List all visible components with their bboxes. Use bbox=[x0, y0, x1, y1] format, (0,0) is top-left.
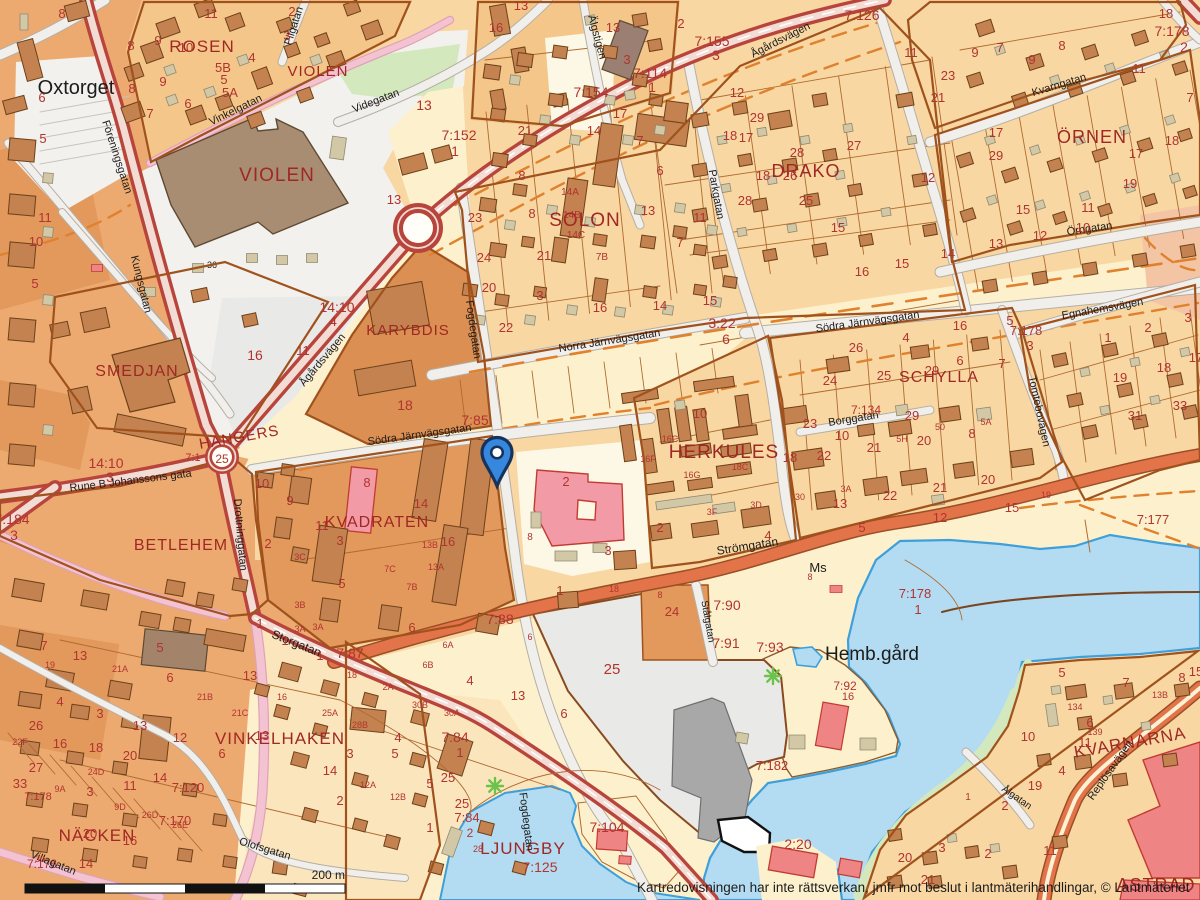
svg-text:9: 9 bbox=[154, 33, 161, 48]
svg-text:9: 9 bbox=[1028, 52, 1035, 67]
svg-text:6: 6 bbox=[166, 670, 173, 685]
svg-text:7: 7 bbox=[40, 638, 47, 653]
svg-text:SOLON: SOLON bbox=[549, 210, 621, 231]
svg-text:26: 26 bbox=[29, 718, 43, 733]
svg-text:25: 25 bbox=[215, 452, 229, 466]
svg-text:10: 10 bbox=[835, 428, 849, 443]
svg-text:2: 2 bbox=[1001, 798, 1008, 813]
svg-text:134: 134 bbox=[1067, 702, 1082, 712]
svg-text:2: 2 bbox=[1180, 39, 1188, 55]
svg-text:7B: 7B bbox=[596, 252, 609, 263]
svg-text:2: 2 bbox=[264, 536, 271, 551]
svg-text:3:22: 3:22 bbox=[708, 315, 735, 331]
svg-text:26: 26 bbox=[783, 168, 797, 183]
svg-text:15: 15 bbox=[831, 220, 845, 235]
svg-text:11: 11 bbox=[296, 343, 310, 358]
svg-text:17: 17 bbox=[613, 106, 627, 121]
svg-text:24D: 24D bbox=[88, 767, 105, 777]
svg-text:13: 13 bbox=[606, 20, 620, 35]
svg-text:1: 1 bbox=[914, 602, 921, 617]
svg-text:18C: 18C bbox=[732, 462, 749, 472]
svg-text:7:154: 7:154 bbox=[573, 84, 608, 100]
svg-text:30: 30 bbox=[795, 492, 805, 502]
svg-text:23: 23 bbox=[803, 416, 817, 431]
svg-text:4: 4 bbox=[329, 313, 337, 329]
svg-text:1: 1 bbox=[316, 648, 323, 663]
svg-text:BETLEHEM: BETLEHEM bbox=[134, 537, 228, 554]
svg-text:4: 4 bbox=[248, 50, 255, 65]
svg-text:12: 12 bbox=[1033, 228, 1047, 243]
svg-text:7:177: 7:177 bbox=[1137, 512, 1170, 527]
svg-text:5A: 5A bbox=[980, 417, 991, 427]
svg-text:5: 5 bbox=[391, 746, 398, 761]
svg-text:15: 15 bbox=[1189, 664, 1200, 679]
svg-text:24: 24 bbox=[665, 604, 679, 619]
svg-text:12: 12 bbox=[933, 510, 947, 525]
svg-text:18: 18 bbox=[89, 740, 103, 755]
svg-text:3D: 3D bbox=[750, 500, 762, 510]
svg-text:33: 33 bbox=[13, 776, 27, 791]
svg-text:6: 6 bbox=[184, 96, 191, 111]
svg-text:7: 7 bbox=[1122, 675, 1129, 690]
svg-text:8: 8 bbox=[807, 572, 812, 582]
svg-text:7:120: 7:120 bbox=[172, 780, 205, 795]
svg-text:27: 27 bbox=[29, 760, 43, 775]
svg-text:5H: 5H bbox=[896, 434, 908, 444]
svg-text:11: 11 bbox=[315, 518, 329, 533]
svg-text:21: 21 bbox=[931, 90, 945, 105]
svg-text:12: 12 bbox=[921, 170, 935, 185]
svg-text:3: 3 bbox=[10, 527, 18, 543]
svg-text:27: 27 bbox=[847, 138, 861, 153]
svg-text:18: 18 bbox=[1157, 360, 1171, 375]
svg-text:6: 6 bbox=[722, 331, 730, 347]
svg-text:24: 24 bbox=[477, 250, 491, 265]
svg-text:14: 14 bbox=[653, 298, 667, 313]
svg-text:6A: 6A bbox=[442, 640, 453, 650]
svg-text:18: 18 bbox=[397, 397, 413, 413]
svg-text:4: 4 bbox=[466, 673, 473, 688]
svg-text:9A: 9A bbox=[54, 784, 65, 794]
svg-text:17: 17 bbox=[989, 125, 1003, 140]
svg-text:11: 11 bbox=[1043, 843, 1057, 858]
svg-text:19: 19 bbox=[1123, 176, 1137, 191]
svg-text:13: 13 bbox=[255, 728, 269, 743]
svg-text:3A: 3A bbox=[294, 624, 305, 634]
svg-text:5: 5 bbox=[1006, 313, 1013, 328]
svg-text:7:178: 7:178 bbox=[1010, 323, 1043, 338]
svg-text:4: 4 bbox=[1058, 763, 1065, 778]
svg-text:11: 11 bbox=[123, 778, 137, 793]
svg-text:2: 2 bbox=[336, 793, 343, 808]
svg-text:13: 13 bbox=[989, 236, 1003, 251]
svg-text:11: 11 bbox=[38, 210, 52, 225]
svg-text:14B: 14B bbox=[563, 210, 581, 221]
svg-text:3: 3 bbox=[96, 706, 103, 721]
svg-text:6: 6 bbox=[527, 632, 532, 642]
svg-text:17: 17 bbox=[739, 130, 753, 145]
svg-text:2: 2 bbox=[562, 474, 569, 489]
svg-text:15: 15 bbox=[1016, 202, 1030, 217]
svg-text:28: 28 bbox=[790, 145, 804, 160]
svg-text:17: 17 bbox=[1129, 146, 1143, 161]
svg-text:21C: 21C bbox=[232, 708, 249, 718]
svg-text:6: 6 bbox=[408, 620, 415, 635]
svg-text:10: 10 bbox=[1021, 729, 1035, 744]
svg-text:30A: 30A bbox=[444, 708, 460, 718]
svg-text:1: 1 bbox=[456, 745, 463, 760]
svg-text:7:152: 7:152 bbox=[441, 127, 476, 143]
svg-text:1: 1 bbox=[256, 616, 263, 631]
svg-text:11: 11 bbox=[904, 45, 918, 60]
svg-text:14A: 14A bbox=[561, 187, 579, 198]
svg-text:13: 13 bbox=[641, 203, 655, 218]
svg-text:16: 16 bbox=[53, 736, 67, 751]
svg-text:10: 10 bbox=[179, 40, 193, 55]
svg-text:19: 19 bbox=[45, 660, 55, 670]
svg-text:13A: 13A bbox=[428, 562, 444, 572]
svg-text:12: 12 bbox=[730, 85, 744, 100]
svg-text:11: 11 bbox=[693, 210, 707, 225]
svg-text:6B: 6B bbox=[422, 660, 433, 670]
svg-text:3: 3 bbox=[1026, 338, 1033, 353]
svg-text:25: 25 bbox=[455, 796, 469, 811]
svg-text:7:1: 7:1 bbox=[185, 452, 200, 464]
svg-text:14: 14 bbox=[587, 123, 601, 138]
svg-text:8: 8 bbox=[127, 38, 134, 53]
svg-text:13B: 13B bbox=[1152, 690, 1168, 700]
svg-text:18: 18 bbox=[756, 168, 770, 183]
svg-text:10: 10 bbox=[255, 476, 269, 491]
svg-text:2: 2 bbox=[288, 4, 295, 19]
svg-text:50: 50 bbox=[935, 422, 945, 432]
svg-text:7:178: 7:178 bbox=[24, 791, 52, 803]
svg-text:7:84: 7:84 bbox=[454, 810, 479, 825]
svg-text:139: 139 bbox=[1087, 727, 1102, 737]
svg-text:8: 8 bbox=[1058, 38, 1065, 53]
svg-text:3: 3 bbox=[336, 533, 343, 548]
svg-text:13: 13 bbox=[387, 192, 401, 207]
svg-text:21: 21 bbox=[933, 480, 947, 495]
svg-text:16F: 16F bbox=[640, 454, 656, 464]
svg-text:18: 18 bbox=[347, 670, 357, 680]
svg-text:5: 5 bbox=[1058, 665, 1065, 680]
svg-text:12: 12 bbox=[173, 730, 187, 745]
svg-text:3A: 3A bbox=[312, 622, 323, 632]
svg-text:11: 11 bbox=[1081, 200, 1095, 215]
svg-text:1: 1 bbox=[281, 633, 288, 648]
svg-text:3: 3 bbox=[623, 52, 630, 67]
svg-text:16G: 16G bbox=[683, 470, 700, 480]
svg-text:5: 5 bbox=[338, 576, 345, 591]
svg-text:3: 3 bbox=[604, 543, 611, 558]
svg-text:13: 13 bbox=[511, 688, 525, 703]
svg-text:SMEDJAN: SMEDJAN bbox=[95, 363, 178, 380]
svg-text:6: 6 bbox=[38, 90, 45, 105]
svg-text:20: 20 bbox=[123, 748, 137, 763]
svg-text:6: 6 bbox=[218, 746, 225, 761]
svg-text:4: 4 bbox=[764, 528, 771, 543]
svg-text:28: 28 bbox=[738, 193, 752, 208]
svg-text:14: 14 bbox=[153, 770, 167, 785]
svg-text:HERKULES: HERKULES bbox=[669, 442, 779, 463]
svg-text:16: 16 bbox=[855, 264, 869, 279]
svg-text:4: 4 bbox=[394, 730, 401, 745]
svg-text:13: 13 bbox=[73, 648, 87, 663]
svg-text:24: 24 bbox=[823, 373, 837, 388]
svg-text:1: 1 bbox=[451, 143, 459, 159]
svg-text:Hemb.gård: Hemb.gård bbox=[825, 644, 919, 665]
svg-text:9: 9 bbox=[159, 74, 166, 89]
svg-text:3: 3 bbox=[283, 28, 290, 43]
svg-text:8: 8 bbox=[518, 168, 525, 183]
svg-text:11: 11 bbox=[1132, 61, 1146, 76]
svg-text:16C: 16C bbox=[662, 434, 679, 444]
svg-text:5: 5 bbox=[858, 520, 865, 535]
svg-text:12A: 12A bbox=[360, 780, 376, 790]
svg-text:5: 5 bbox=[39, 131, 46, 146]
svg-text:9D: 9D bbox=[114, 802, 126, 812]
svg-text:15: 15 bbox=[1005, 500, 1019, 515]
svg-text:5B: 5B bbox=[215, 60, 231, 75]
svg-text:7: 7 bbox=[1186, 90, 1193, 105]
svg-text:14: 14 bbox=[79, 856, 93, 871]
svg-text:22: 22 bbox=[883, 488, 897, 503]
svg-text:23: 23 bbox=[468, 210, 482, 225]
svg-text:7:104: 7:104 bbox=[589, 819, 624, 835]
svg-text:14: 14 bbox=[323, 763, 337, 778]
svg-text:2: 2 bbox=[984, 846, 991, 861]
svg-text:8: 8 bbox=[363, 475, 370, 490]
svg-text:6: 6 bbox=[956, 353, 963, 368]
svg-text:7B: 7B bbox=[406, 582, 417, 592]
svg-text:4: 4 bbox=[902, 330, 909, 345]
svg-text:7: 7 bbox=[998, 356, 1005, 371]
svg-text:20: 20 bbox=[981, 472, 995, 487]
svg-text:3: 3 bbox=[938, 840, 945, 855]
svg-text:1: 1 bbox=[965, 792, 971, 803]
svg-text:7:84: 7:84 bbox=[441, 729, 468, 745]
svg-text:2: 2 bbox=[677, 16, 684, 31]
svg-text:7:87: 7:87 bbox=[336, 645, 363, 661]
svg-text:7: 7 bbox=[996, 40, 1003, 55]
svg-text:19: 19 bbox=[1028, 778, 1042, 793]
svg-text:15: 15 bbox=[703, 293, 717, 308]
svg-text:9: 9 bbox=[286, 493, 293, 508]
svg-text:13: 13 bbox=[416, 97, 432, 113]
svg-text:33: 33 bbox=[1173, 398, 1187, 413]
svg-text:29: 29 bbox=[989, 148, 1003, 163]
svg-text:14C: 14C bbox=[567, 230, 585, 241]
svg-text:20: 20 bbox=[83, 826, 97, 841]
svg-text:4: 4 bbox=[56, 694, 63, 709]
svg-text:2: 2 bbox=[656, 520, 663, 535]
svg-text:13: 13 bbox=[514, 0, 528, 13]
svg-text:200 m: 200 m bbox=[312, 868, 345, 882]
svg-text:8: 8 bbox=[657, 590, 662, 600]
svg-text:KARYBDIS: KARYBDIS bbox=[366, 322, 450, 339]
svg-text:7: 7 bbox=[146, 106, 153, 121]
svg-text:12B: 12B bbox=[390, 792, 406, 802]
svg-text:1: 1 bbox=[556, 583, 563, 598]
svg-text:25A: 25A bbox=[322, 708, 338, 718]
svg-text:21B: 21B bbox=[197, 692, 213, 702]
svg-text:5: 5 bbox=[31, 276, 38, 291]
svg-text:13: 13 bbox=[133, 718, 147, 733]
svg-text:5: 5 bbox=[156, 640, 163, 655]
svg-text:7:125: 7:125 bbox=[522, 859, 557, 875]
svg-text:13: 13 bbox=[833, 496, 847, 511]
svg-text:7:126: 7:126 bbox=[844, 7, 879, 23]
svg-text:14: 14 bbox=[414, 496, 428, 511]
svg-text:6: 6 bbox=[560, 706, 567, 721]
svg-text:8: 8 bbox=[528, 206, 535, 221]
svg-text:28: 28 bbox=[473, 844, 483, 854]
svg-text:ÖRNEN: ÖRNEN bbox=[1057, 127, 1127, 147]
svg-text:3B: 3B bbox=[294, 600, 305, 610]
svg-text:3: 3 bbox=[86, 784, 93, 799]
svg-text:7: 7 bbox=[676, 235, 683, 250]
svg-text:16: 16 bbox=[489, 20, 503, 35]
svg-text:16: 16 bbox=[953, 318, 967, 333]
svg-text:25: 25 bbox=[441, 770, 455, 785]
svg-text:6: 6 bbox=[656, 163, 663, 178]
svg-text:2: 2 bbox=[1144, 320, 1151, 335]
svg-text:30B: 30B bbox=[412, 700, 428, 710]
svg-text:3: 3 bbox=[712, 47, 720, 63]
svg-text:1: 1 bbox=[426, 820, 433, 835]
svg-text:VINKELHAKEN: VINKELHAKEN bbox=[215, 729, 345, 748]
svg-text:3A: 3A bbox=[840, 484, 851, 494]
svg-text:21: 21 bbox=[867, 440, 881, 455]
svg-text:25: 25 bbox=[604, 661, 621, 678]
svg-text:VIOLEN: VIOLEN bbox=[239, 165, 315, 186]
svg-text:16: 16 bbox=[593, 300, 607, 315]
svg-text:22F: 22F bbox=[12, 737, 28, 747]
svg-text:8: 8 bbox=[58, 6, 65, 21]
svg-text:29: 29 bbox=[905, 408, 919, 423]
svg-text:7: 7 bbox=[636, 133, 643, 148]
svg-text:Kartredovisningen har inte rät: Kartredovisningen har inte rättsverkan, … bbox=[637, 880, 1190, 895]
svg-text:1: 1 bbox=[1104, 330, 1111, 345]
svg-text:29: 29 bbox=[925, 363, 939, 378]
svg-text:14: 14 bbox=[941, 246, 955, 261]
svg-text:25: 25 bbox=[799, 193, 813, 208]
svg-text:3F: 3F bbox=[707, 507, 718, 517]
svg-text:7:90: 7:90 bbox=[713, 597, 740, 613]
svg-text:16: 16 bbox=[441, 534, 455, 549]
svg-text:10: 10 bbox=[1076, 220, 1090, 235]
svg-text:3: 3 bbox=[536, 288, 543, 303]
svg-text:10: 10 bbox=[29, 234, 43, 249]
svg-text:7C: 7C bbox=[384, 564, 396, 574]
svg-text:23: 23 bbox=[941, 68, 955, 83]
svg-text:2A: 2A bbox=[382, 682, 393, 692]
svg-text:3: 3 bbox=[1184, 310, 1191, 325]
svg-text:7:93: 7:93 bbox=[756, 639, 783, 655]
svg-text:18: 18 bbox=[723, 128, 737, 143]
svg-text:8: 8 bbox=[968, 426, 975, 441]
svg-text:26D: 26D bbox=[142, 810, 159, 820]
svg-text:8: 8 bbox=[1178, 670, 1185, 685]
svg-text:19: 19 bbox=[1113, 370, 1127, 385]
svg-text:7:178: 7:178 bbox=[1154, 23, 1189, 39]
svg-text:16: 16 bbox=[842, 691, 854, 703]
svg-text:22: 22 bbox=[499, 320, 513, 335]
svg-text:13: 13 bbox=[243, 668, 257, 683]
svg-text:7:182: 7:182 bbox=[756, 758, 789, 773]
svg-text:18: 18 bbox=[609, 584, 619, 594]
svg-text:VIOLEN: VIOLEN bbox=[287, 63, 348, 80]
svg-text:2:20: 2:20 bbox=[784, 836, 811, 852]
svg-text:26: 26 bbox=[849, 340, 863, 355]
svg-text:18: 18 bbox=[783, 450, 797, 465]
svg-text:19: 19 bbox=[1041, 490, 1051, 500]
svg-text:3C: 3C bbox=[294, 552, 306, 562]
svg-text:13B: 13B bbox=[422, 540, 438, 550]
svg-text:11: 11 bbox=[204, 6, 218, 21]
svg-text:17: 17 bbox=[1189, 350, 1200, 365]
svg-text:16: 16 bbox=[277, 692, 287, 702]
svg-text:7:178: 7:178 bbox=[899, 586, 932, 601]
svg-text:Oxtorget: Oxtorget bbox=[38, 77, 115, 99]
svg-text:22: 22 bbox=[817, 448, 831, 463]
svg-text:14:10: 14:10 bbox=[319, 299, 354, 315]
svg-text:29: 29 bbox=[750, 110, 764, 125]
svg-text:7:88: 7:88 bbox=[486, 611, 513, 627]
svg-text:KVADRATEN: KVADRATEN bbox=[325, 514, 429, 531]
svg-text:16: 16 bbox=[123, 833, 137, 848]
svg-text:21A: 21A bbox=[112, 664, 128, 674]
svg-text:25: 25 bbox=[877, 368, 891, 383]
svg-text:1: 1 bbox=[648, 79, 656, 95]
svg-text:2: 2 bbox=[467, 826, 474, 840]
svg-text:8: 8 bbox=[128, 81, 135, 96]
svg-text:21: 21 bbox=[537, 248, 551, 263]
svg-text:18: 18 bbox=[1159, 6, 1173, 21]
svg-text:20: 20 bbox=[482, 280, 496, 295]
svg-text:3: 3 bbox=[346, 746, 353, 761]
svg-text:26E: 26E bbox=[172, 820, 188, 830]
svg-text:16: 16 bbox=[247, 347, 263, 363]
svg-text:20: 20 bbox=[917, 433, 931, 448]
svg-text:7:184: 7:184 bbox=[0, 511, 30, 527]
svg-text:28B: 28B bbox=[352, 720, 368, 730]
svg-text:21: 21 bbox=[518, 123, 532, 138]
svg-text:11: 11 bbox=[1078, 735, 1092, 750]
svg-text:9: 9 bbox=[971, 45, 978, 60]
svg-text:5A: 5A bbox=[222, 85, 238, 100]
svg-text:5: 5 bbox=[426, 776, 433, 791]
svg-text:8: 8 bbox=[527, 532, 533, 543]
svg-text:30: 30 bbox=[35, 854, 45, 864]
svg-text:15: 15 bbox=[895, 256, 909, 271]
svg-text:20: 20 bbox=[898, 850, 912, 865]
svg-text:18: 18 bbox=[1165, 133, 1179, 148]
svg-text:31: 31 bbox=[1128, 408, 1142, 423]
svg-text:10: 10 bbox=[693, 406, 707, 421]
